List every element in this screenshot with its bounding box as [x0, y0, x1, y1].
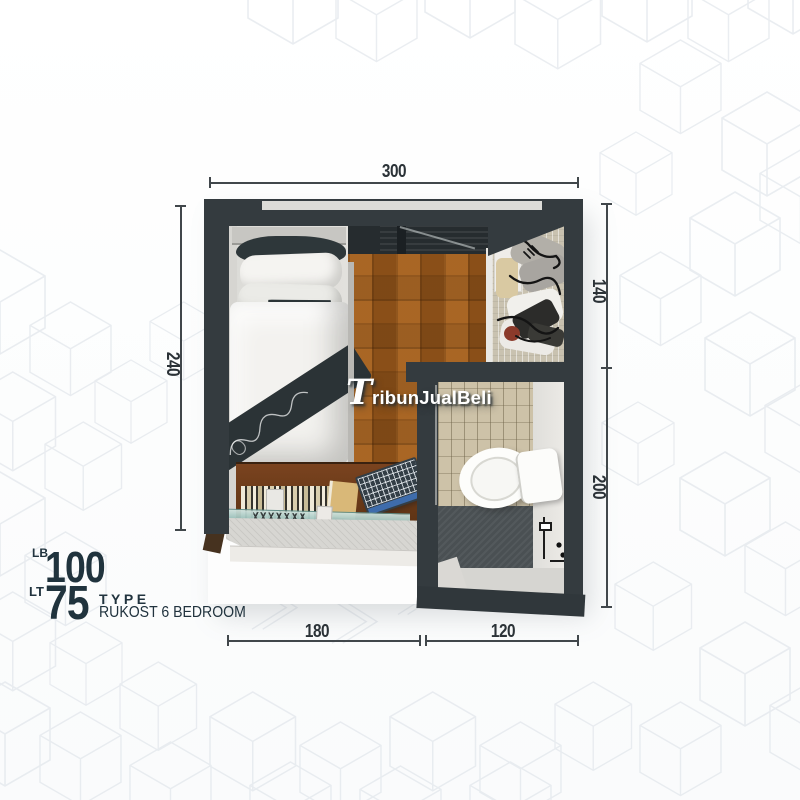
dim-bottom-tick-1 [227, 635, 229, 646]
lt-value: 75 [45, 580, 89, 628]
dim-label-left: 240 [164, 343, 182, 386]
dim-label-right-lower: 200 [590, 466, 608, 509]
right-wall [564, 218, 583, 612]
top-wall-cap [262, 201, 542, 210]
dim-bottom-tick-4 [577, 635, 579, 646]
dim-top-tick-right [577, 177, 579, 188]
desk-white-card [266, 489, 284, 511]
type-name: RUKOST 6 BEDROOM [99, 604, 246, 622]
watermark-logo-letter: T [346, 377, 372, 409]
dim-top-line [210, 182, 578, 184]
top-wall [204, 199, 583, 226]
entry-hall-floor [348, 224, 495, 254]
dim-left-tick-top [175, 205, 186, 207]
dim-label-right-upper: 140 [590, 270, 608, 313]
dim-label-bottom-right: 120 [482, 622, 525, 640]
toilet-tank [515, 447, 564, 504]
dim-right-tick-mid [601, 367, 612, 369]
dim-bottom-tick-2 [419, 635, 421, 646]
dim-right-tick-bottom [601, 606, 612, 608]
watermark-brand-text: ribunJualBeli [372, 387, 492, 409]
dim-right-line [606, 204, 608, 608]
dim-right-tick-top [601, 203, 612, 205]
dim-left-tick-bottom [175, 529, 186, 531]
dim-label-bottom-left: 180 [296, 622, 339, 640]
left-wall [204, 222, 229, 534]
dim-bottom-tick-3 [425, 635, 427, 646]
dim-label-top: 300 [373, 162, 416, 180]
bed-side-shadow [348, 262, 354, 467]
watermark: TribunJualBeli [346, 377, 492, 409]
listing-floorplan-image: 300 240 140 200 180 120 TribunJualBeli L… [0, 0, 800, 800]
lt-label: LT [29, 584, 44, 599]
dim-top-tick-left [209, 177, 211, 188]
